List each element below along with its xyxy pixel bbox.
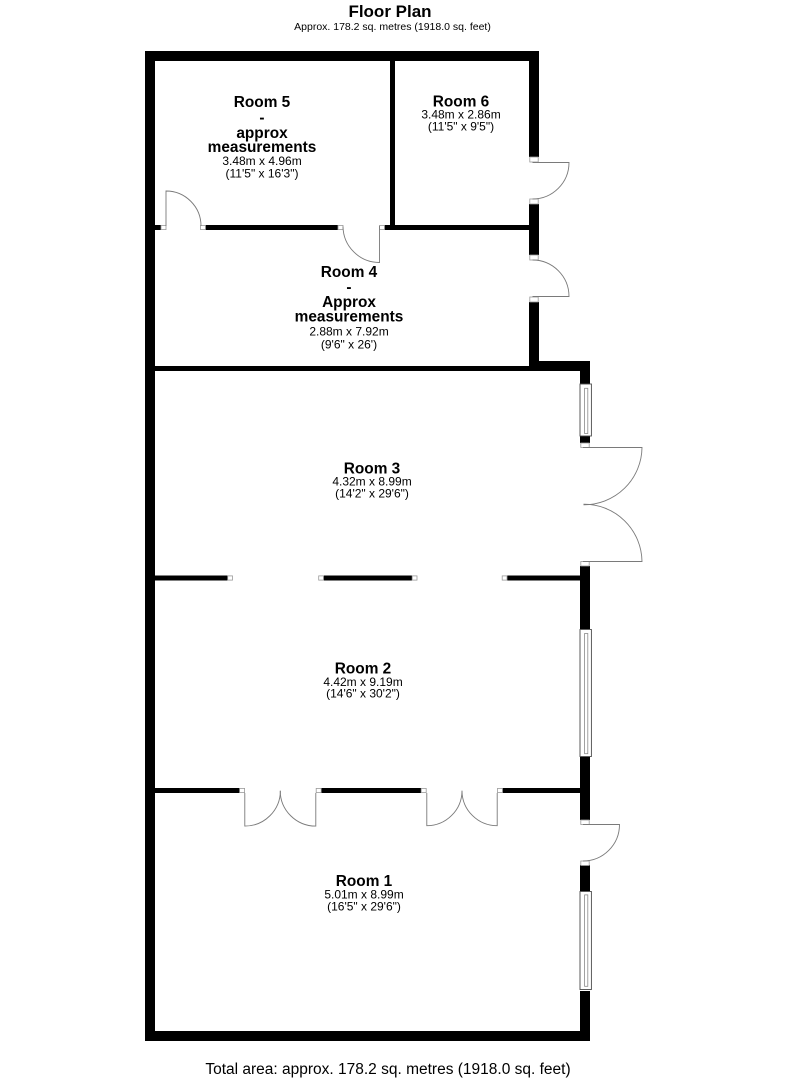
svg-text:Room 5: Room 5 <box>234 94 291 111</box>
svg-text:Approx. 178.2 sq. metres (1918: Approx. 178.2 sq. metres (1918.0 sq. fee… <box>294 21 491 33</box>
svg-text:(16'5" x 29'6"): (16'5" x 29'6") <box>327 900 401 914</box>
svg-text:(14'6" x 30'2"): (14'6" x 30'2") <box>326 687 400 701</box>
svg-text:(14'2" x 29'6"): (14'2" x 29'6") <box>335 486 409 500</box>
svg-text:(9'6" x 26'): (9'6" x 26') <box>321 338 377 352</box>
svg-text:(11'5" x 9'5"): (11'5" x 9'5") <box>428 120 494 134</box>
svg-text:(11'5" x 16'3"): (11'5" x 16'3") <box>226 167 299 181</box>
svg-text:Floor Plan: Floor Plan <box>348 2 431 21</box>
svg-text:measurements: measurements <box>295 309 404 326</box>
svg-text:Total area: approx. 178.2 sq.: Total area: approx. 178.2 sq. metres (19… <box>205 1061 570 1078</box>
svg-text:2.88m x 7.92m: 2.88m x 7.92m <box>309 325 388 339</box>
svg-text:-: - <box>259 110 264 127</box>
